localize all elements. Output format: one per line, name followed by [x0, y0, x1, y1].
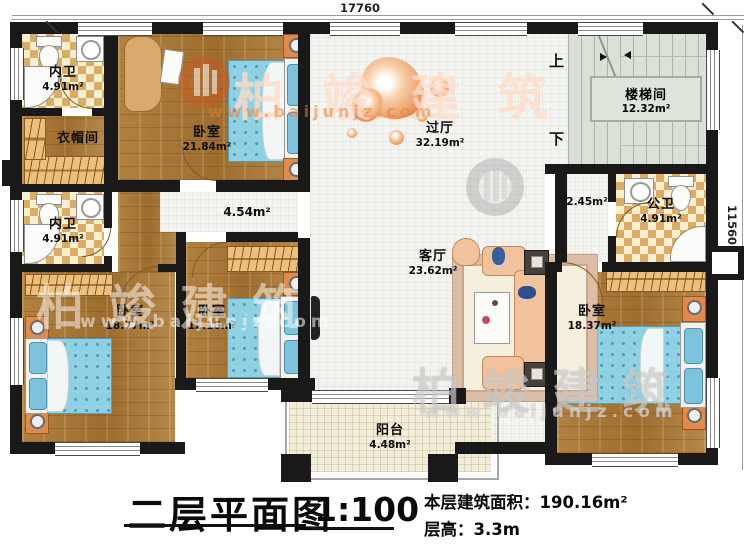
table-flowers [482, 316, 490, 324]
right-dimension-label: 11560 [725, 205, 739, 245]
window [578, 22, 643, 36]
wall-bedroom-right-top-b [602, 262, 718, 272]
wall-pilaster-left [2, 160, 10, 186]
bedroom-left-wardrobe [25, 274, 113, 296]
tv-icon [311, 296, 320, 340]
floor-plan: 17760 11560 楼梯间 12.32m² 上 下 [0, 0, 750, 546]
window [55, 442, 140, 456]
bed-top-sheet [262, 62, 286, 160]
nightstand [25, 316, 49, 340]
window [10, 318, 24, 385]
lamp-icon [30, 320, 45, 335]
room-label-balcony: 阳台 4.48m² [350, 424, 430, 451]
stairs-down-label: 下 [549, 128, 564, 149]
top-dimension-line [12, 15, 744, 16]
stairwell-name: 楼梯间 [625, 84, 667, 103]
balcony-door-window [312, 390, 449, 404]
room-label-corridor-small: 2.45m² [556, 196, 618, 208]
wall-bedroom-mid-top [226, 232, 298, 242]
stair-arrow-left [600, 53, 607, 61]
window [78, 22, 152, 36]
room-label-corridor: 4.54m² [205, 206, 289, 220]
wall-balcony-right [449, 388, 466, 404]
plan-scale: 1:100 [314, 490, 419, 529]
stair-arrow-right [624, 51, 631, 59]
room-label-bedroom-left: 卧室 18.77m² [90, 305, 170, 332]
room-label-hall: 过厅 32.19m² [400, 122, 480, 149]
room-label-bath-public: 公卫 4.91m² [626, 198, 696, 225]
pillow [684, 328, 703, 364]
wall-corridor-top-b [216, 180, 310, 192]
window [455, 22, 527, 36]
room-label-bedroom-mid: 卧室 12.16m² [172, 305, 252, 332]
bed-mid-sheet [258, 300, 280, 376]
window [592, 453, 678, 467]
pillow [29, 342, 47, 374]
wall-bath-cloak-a [22, 108, 62, 116]
top-dimension-label: 17760 [340, 1, 380, 15]
wall-corridor-top-a [118, 180, 180, 192]
stairwell-area: 12.32m² [622, 103, 671, 115]
pillow [684, 368, 703, 404]
end-table-top [531, 256, 543, 268]
window [10, 200, 24, 252]
wall-vestibule-bottom [158, 264, 178, 272]
bedroom-mid-wardrobe [227, 246, 307, 272]
window [10, 48, 24, 100]
wall-bottom-living [455, 442, 557, 454]
lamp-icon [687, 408, 702, 423]
sink-icon [81, 198, 101, 218]
wall-stair-bottom [545, 164, 718, 174]
sofa-bottom [482, 356, 524, 390]
wall-bath2-right-a [104, 192, 112, 228]
lamp-icon [30, 414, 45, 429]
stairs-up-label: 上 [549, 50, 564, 71]
window [706, 378, 720, 448]
title-underline [124, 524, 306, 527]
sink-icon [81, 40, 101, 60]
scale-underline [310, 527, 394, 530]
room-label-living: 客厅 23.62m² [395, 250, 471, 277]
window [196, 378, 268, 392]
table-decor [492, 300, 498, 306]
wall-cloak-bath2 [22, 184, 104, 192]
hall-decor-dot [347, 128, 357, 138]
stairwell-label-box: 楼梯间 12.32m² [590, 76, 702, 122]
window [203, 22, 283, 36]
window [330, 22, 400, 36]
room-label-bedroom-top: 卧室 21.84m² [167, 126, 247, 153]
bed-right-sheet [640, 328, 664, 402]
hall-decor-dot [430, 78, 449, 97]
top-dimension-line2 [12, 19, 744, 20]
wall-corridor2-left [555, 174, 567, 262]
dimension-tick [702, 3, 714, 15]
pillow [29, 378, 47, 410]
wall-bedroomtop-hall [298, 34, 310, 192]
floor-height-text: 层高：3.3m [424, 516, 520, 540]
wall-balcony-left [281, 388, 312, 402]
bed-left-sheet [47, 340, 69, 412]
room-label-bath-top-left: 内卫 4.91m² [28, 66, 98, 93]
balcony-pillar [428, 454, 458, 482]
lamp-icon [687, 300, 702, 315]
wall-pubbath-left-b [608, 236, 616, 262]
balcony-pillar [281, 454, 311, 482]
end-table-top [531, 368, 543, 380]
wall-bath-bedroom [104, 34, 118, 192]
person-figure [518, 286, 536, 299]
window [706, 50, 720, 130]
room-label-bedroom-right: 卧室 18.37m² [552, 305, 632, 332]
room-label-bath-mid-left: 内卫 4.91m² [28, 218, 98, 245]
person-figure [492, 247, 505, 265]
wall-living-left [298, 238, 310, 390]
corridor-small-floor [567, 174, 608, 262]
plan-title: 二层平面图 [128, 484, 333, 539]
bay-inner [712, 252, 738, 274]
wall-bath2-bottom [22, 264, 112, 272]
wall-bath-cloak-b [92, 108, 104, 116]
building-area-text: 本层建筑面积：190.16m² [424, 489, 628, 513]
wall-bedroom-right-left [545, 262, 557, 465]
nightstand [682, 296, 706, 322]
room-label-cloakroom: 衣帽间 [36, 132, 120, 147]
desk-chair [124, 36, 162, 112]
